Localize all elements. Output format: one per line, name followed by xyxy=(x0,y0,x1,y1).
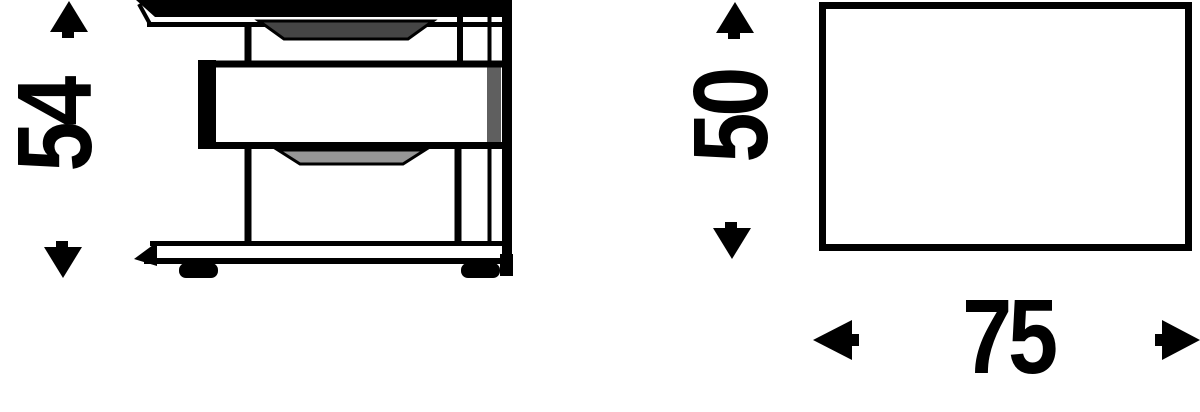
arrow-up-stub xyxy=(728,33,740,39)
arrow-left-icon xyxy=(813,320,852,360)
lower-drawer-recess xyxy=(278,150,425,164)
plan-view-drawing xyxy=(823,6,1189,248)
arrow-right-stub xyxy=(1155,334,1162,346)
middle-drawer-left-face xyxy=(198,60,216,149)
arrow-down-stub xyxy=(725,222,737,228)
dimension-drawing-canvas: 54 50 75 xyxy=(0,0,1200,412)
arrow-up-icon xyxy=(50,1,88,32)
width-dimension-value: 75 xyxy=(962,284,1054,390)
arrow-down-icon xyxy=(713,228,751,259)
arrow-up-stub xyxy=(62,32,74,38)
top-panel xyxy=(136,0,505,17)
front-view-drawing xyxy=(134,0,513,278)
arrow-right-icon xyxy=(1162,320,1200,360)
plinth-left-end-cap xyxy=(134,242,157,266)
arrow-down-icon xyxy=(44,247,82,278)
plan-outline xyxy=(823,6,1189,248)
upper-drawer-recess xyxy=(259,21,433,39)
arrow-down-stub xyxy=(56,241,68,247)
depth-dimension-value: 50 xyxy=(678,71,784,163)
arrow-up-icon xyxy=(716,2,754,33)
height-dimension-value: 54 xyxy=(2,80,108,172)
right-foot xyxy=(461,263,500,278)
middle-drawer-shadow xyxy=(487,67,501,142)
plinth-right-corner xyxy=(500,254,513,276)
arrow-left-stub xyxy=(852,334,859,346)
left-foot xyxy=(179,263,218,278)
